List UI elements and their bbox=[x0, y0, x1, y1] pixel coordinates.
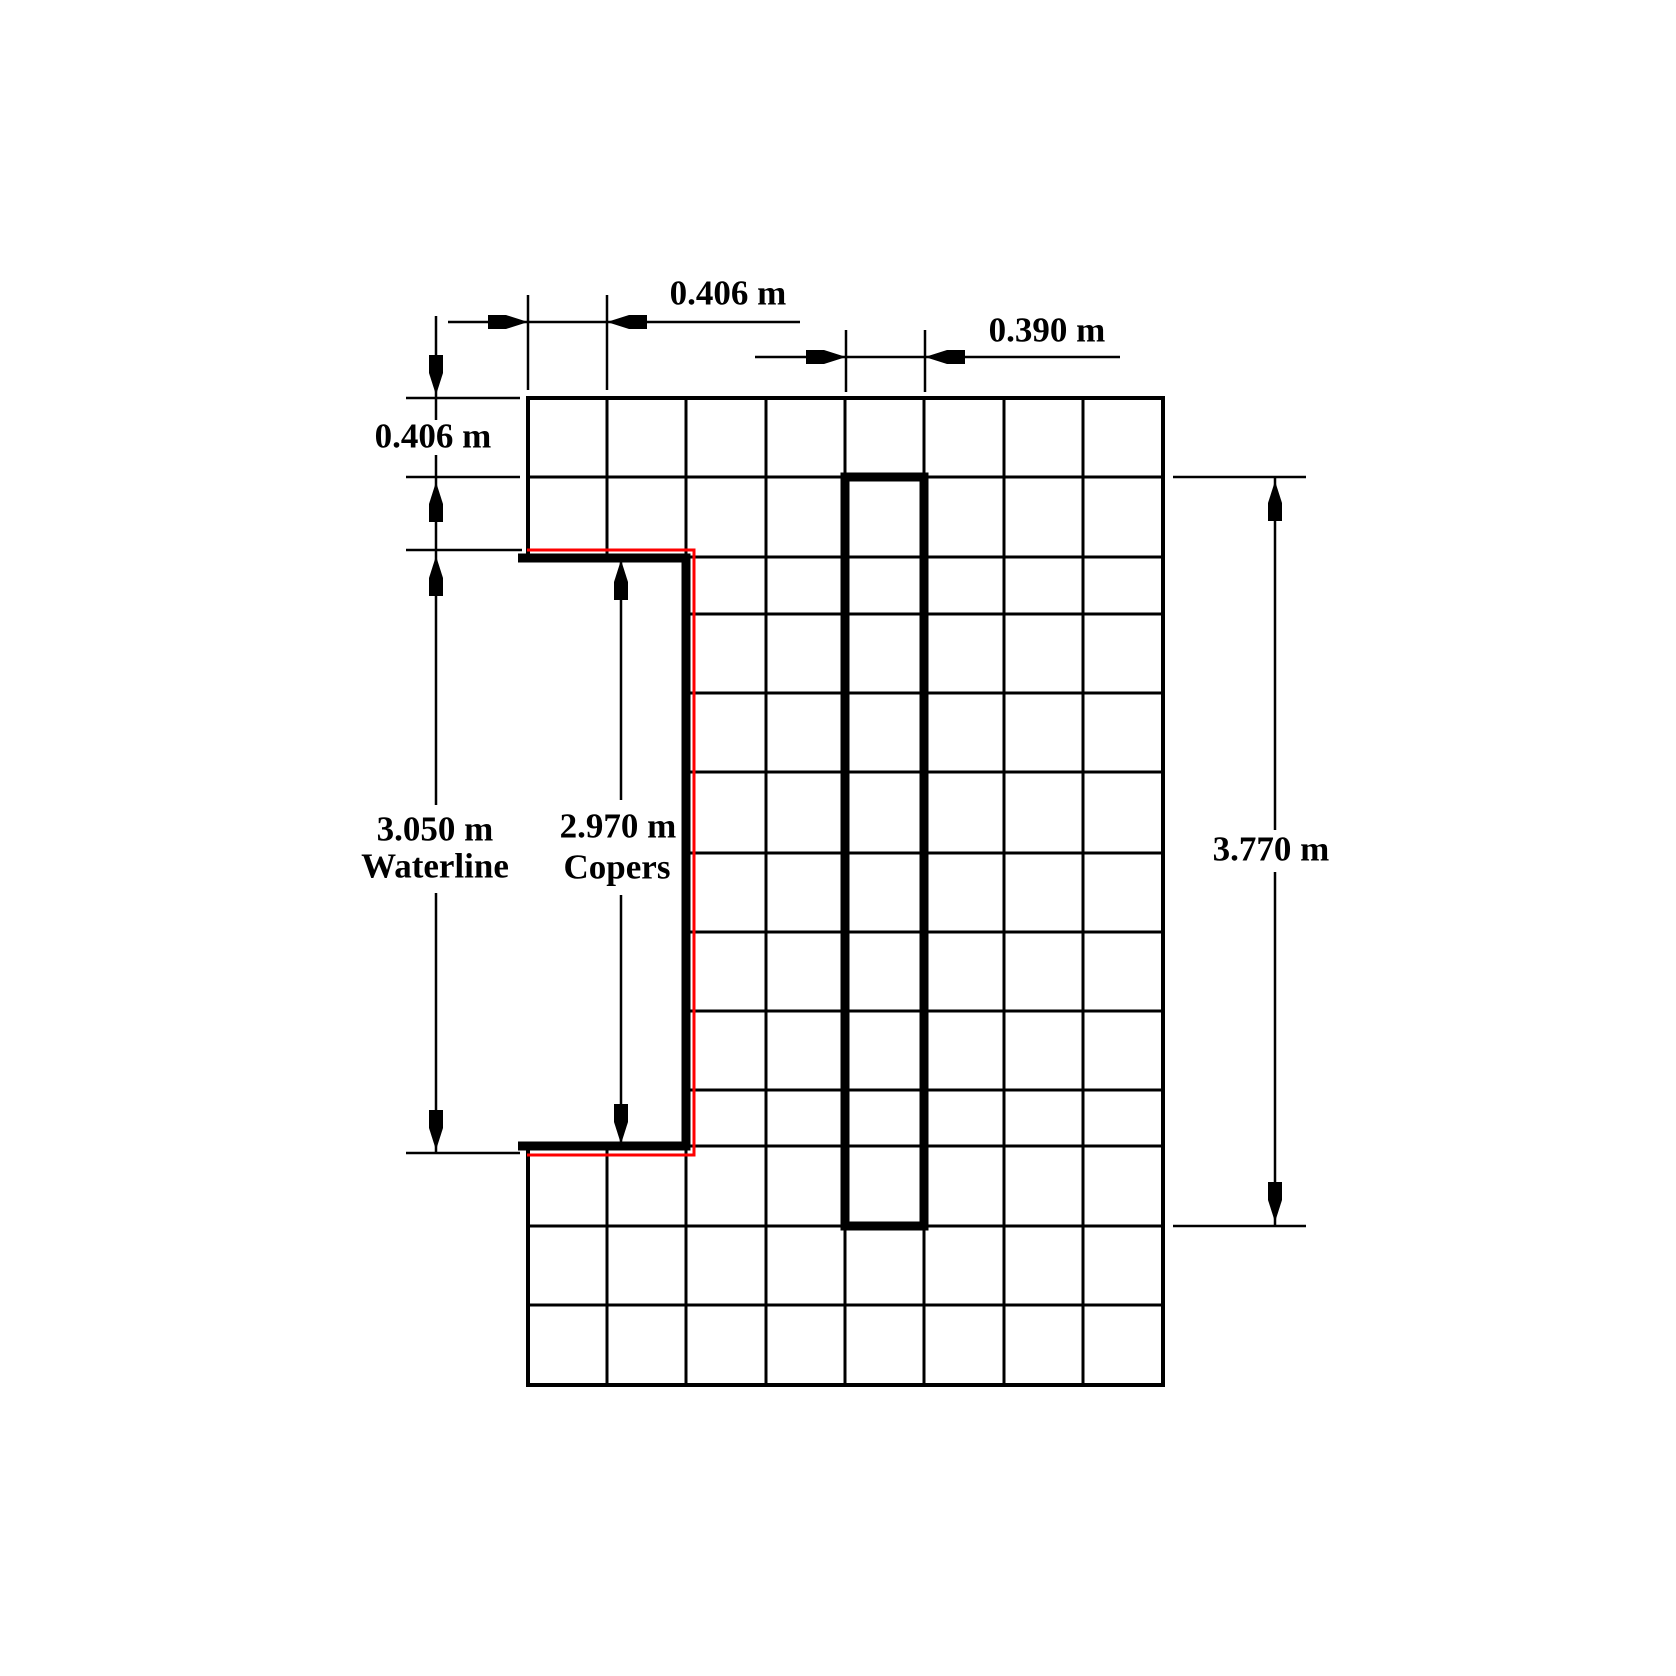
arrow-down-icon bbox=[429, 1110, 443, 1150]
dim-label-waterline-value: 3.050 m bbox=[377, 812, 494, 847]
arrow-up-icon bbox=[614, 560, 628, 600]
arrow-right-icon bbox=[488, 315, 528, 329]
drawing-svg bbox=[0, 0, 1676, 1676]
dim-label-copers-name: Copers bbox=[564, 850, 671, 885]
arrow-left-icon bbox=[607, 315, 647, 329]
arrow-up-icon bbox=[1268, 481, 1282, 521]
dim-label-member-width: 0.390 m bbox=[989, 313, 1106, 348]
dim-label-overall-height: 3.770 m bbox=[1213, 832, 1330, 867]
arrow-down-icon bbox=[614, 1104, 628, 1144]
arrow-up-icon bbox=[429, 556, 443, 596]
arrow-up-icon bbox=[429, 482, 443, 522]
dimension-drawing-canvas: 0.406 m 0.390 m 0.406 m 3.050 m Waterlin… bbox=[0, 0, 1676, 1676]
dim-label-course-height: 0.406 m bbox=[375, 419, 492, 454]
dim-label-top-width: 0.406 m bbox=[670, 276, 787, 311]
arrow-right-icon bbox=[806, 350, 846, 364]
dim-label-waterline-name: Waterline bbox=[361, 849, 509, 884]
dim-label-copers-value: 2.970 m bbox=[560, 809, 677, 844]
arrow-down-icon bbox=[1268, 1182, 1282, 1222]
arrow-left-icon bbox=[925, 350, 965, 364]
arrow-down-icon bbox=[429, 355, 443, 395]
